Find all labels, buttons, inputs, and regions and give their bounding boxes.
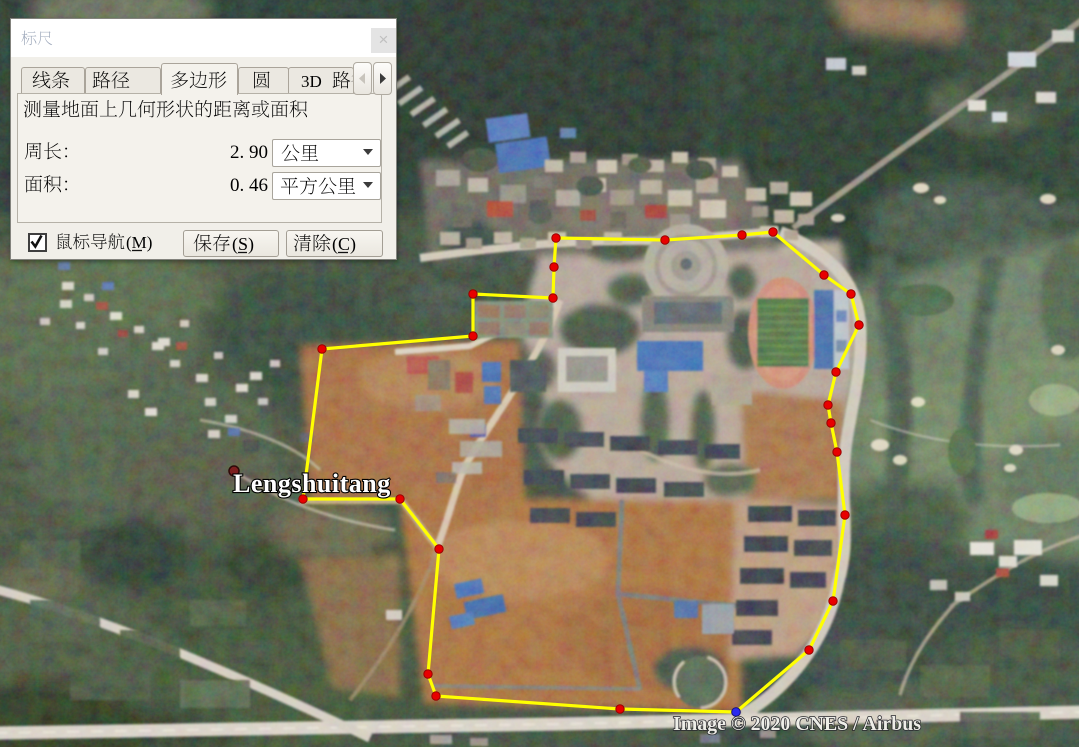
svg-text:Lengshuitang: Lengshuitang bbox=[233, 469, 391, 498]
svg-text:Image © 2020 CNES / Airbus: Image © 2020 CNES / Airbus bbox=[673, 713, 921, 735]
